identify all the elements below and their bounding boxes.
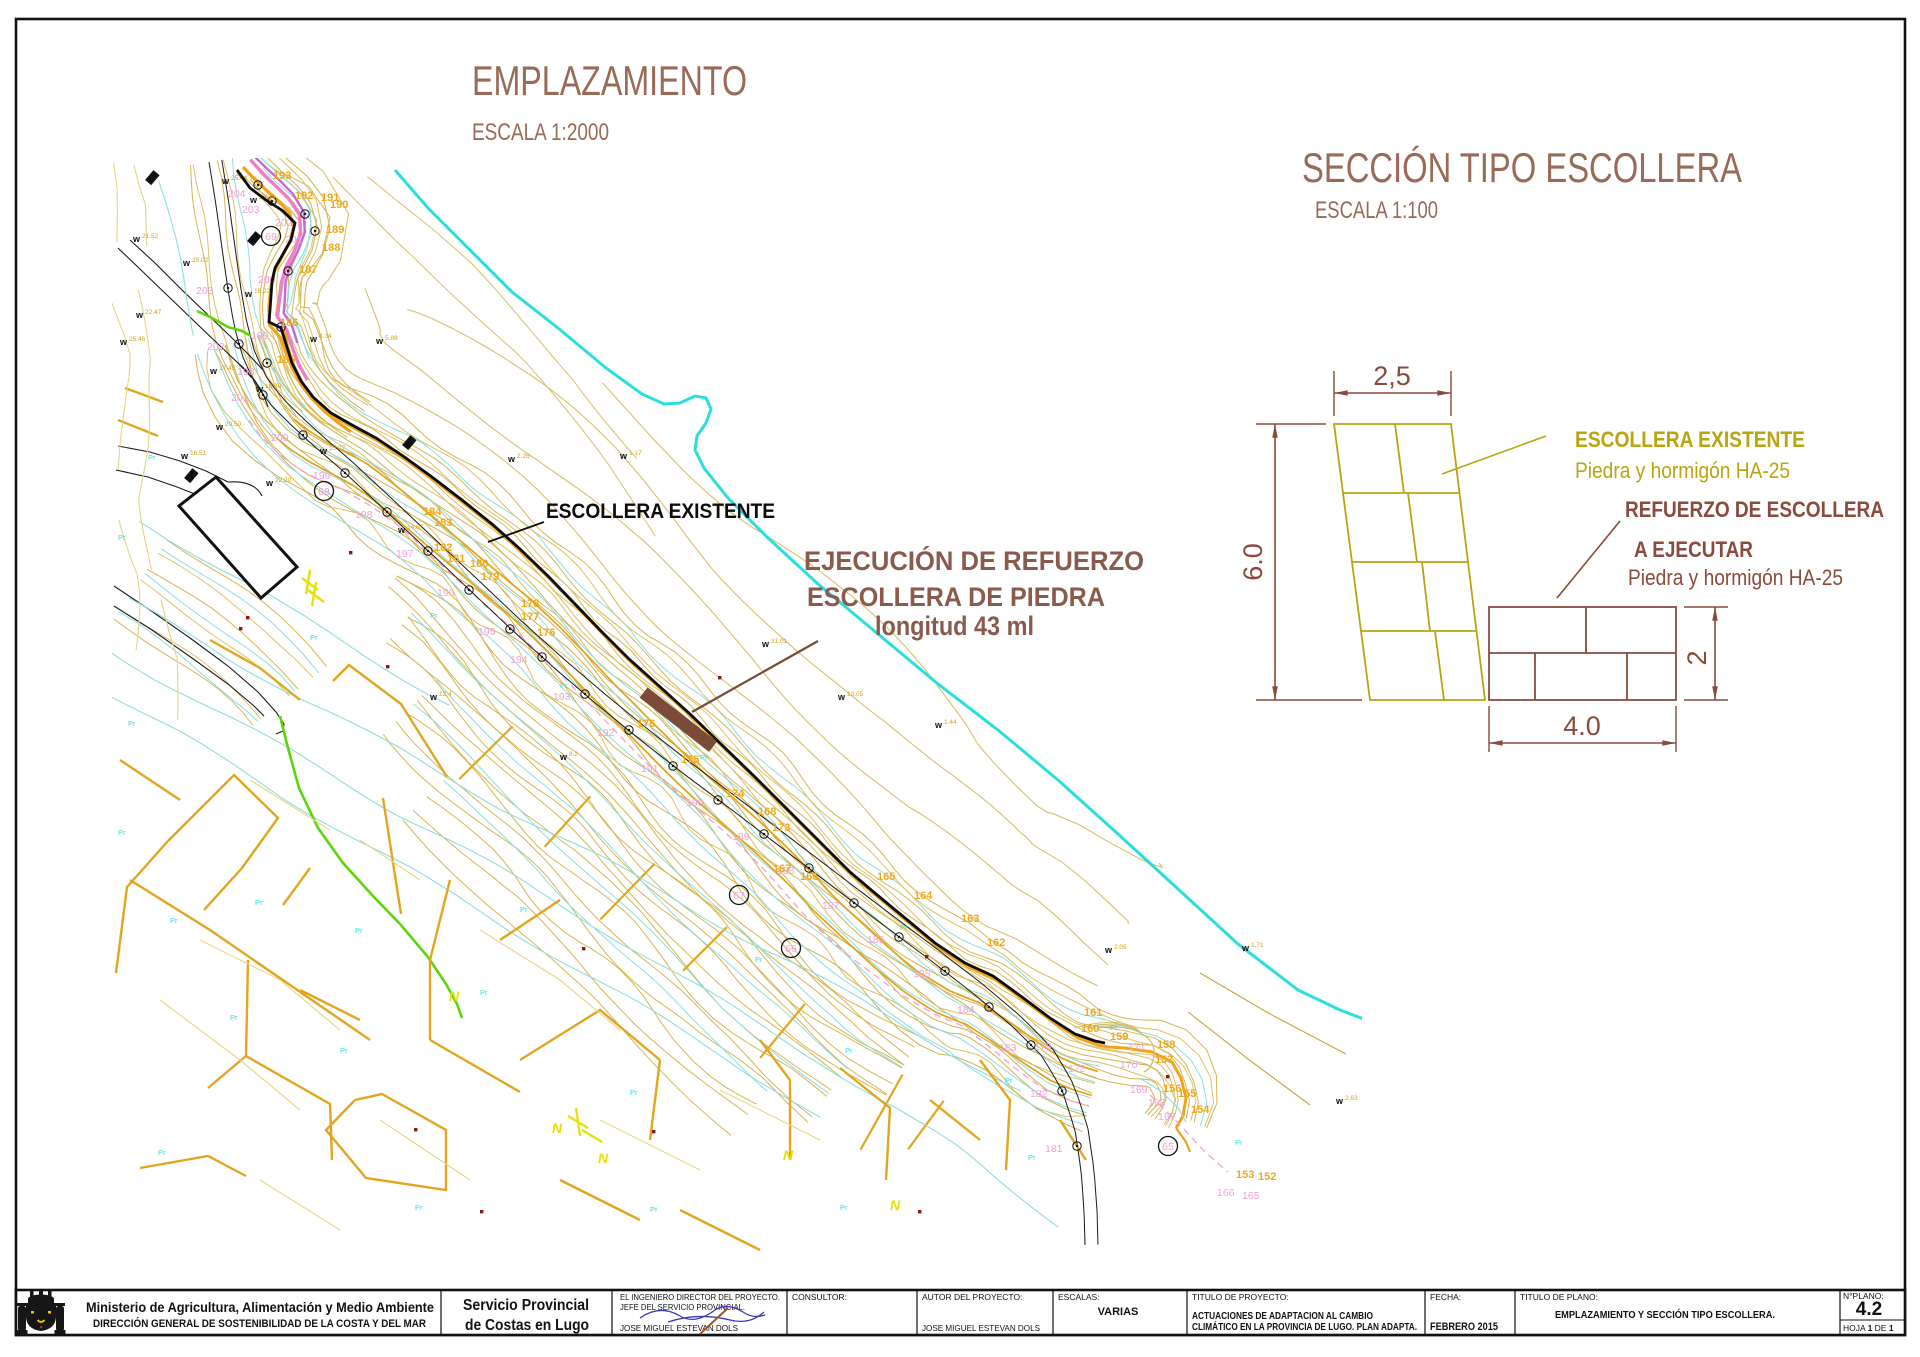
svg-text:68: 68 — [318, 486, 330, 498]
svg-text:67: 67 — [733, 890, 745, 902]
svg-text:196: 196 — [437, 587, 455, 599]
svg-text:w: w — [619, 451, 628, 461]
svg-text:4.2: 4.2 — [1856, 1299, 1882, 1320]
svg-text:Pr: Pr — [118, 533, 126, 542]
svg-text:161: 161 — [1084, 1007, 1102, 1019]
svg-text:173: 173 — [1034, 1041, 1052, 1053]
svg-text:w: w — [221, 176, 230, 186]
svg-text:Pr: Pr — [840, 1203, 848, 1212]
svg-text:Pr: Pr — [158, 1148, 166, 1157]
svg-text:N: N — [449, 988, 460, 1004]
svg-text:2.05: 2.05 — [1114, 944, 1127, 951]
svg-text:195: 195 — [478, 626, 496, 638]
svg-text:2.26: 2.26 — [517, 453, 530, 460]
svg-text:183: 183 — [999, 1042, 1017, 1054]
svg-text:164: 164 — [914, 890, 933, 902]
svg-text:JOSE MIGUEL ESTEVAN DOLS: JOSE MIGUEL ESTEVAN DOLS — [922, 1323, 1040, 1333]
svg-text:177: 177 — [521, 611, 539, 623]
svg-text:6.0: 6.0 — [1238, 543, 1268, 581]
svg-text:JOSE MIGUEL ESTEVAN DOLS: JOSE MIGUEL ESTEVAN DOLS — [620, 1323, 738, 1333]
svg-text:157: 157 — [1155, 1054, 1173, 1066]
svg-text:172: 172 — [1068, 1063, 1086, 1075]
svg-text:188: 188 — [322, 242, 340, 254]
svg-text:165: 165 — [1242, 1190, 1260, 1202]
svg-text:CONSULTOR:: CONSULTOR: — [792, 1292, 847, 1302]
svg-text:190: 190 — [330, 199, 348, 211]
svg-text:31.01: 31.01 — [771, 638, 788, 645]
svg-text:8.2: 8.2 — [569, 751, 578, 758]
svg-text:w: w — [119, 337, 128, 347]
svg-text:w: w — [761, 639, 770, 649]
svg-text:N: N — [890, 1197, 901, 1213]
svg-text:w: w — [249, 195, 258, 205]
svg-text:192: 192 — [295, 190, 313, 202]
svg-text:153: 153 — [1236, 1169, 1254, 1181]
svg-text:184: 184 — [957, 1004, 975, 1016]
svg-text:159: 159 — [1110, 1031, 1128, 1043]
svg-text:Servicio Provincial: Servicio Provincial — [463, 1297, 589, 1314]
svg-text:ESCOLLERA DE PIEDRA: ESCOLLERA DE PIEDRA — [807, 582, 1105, 612]
svg-text:de Costas en Lugo: de Costas en Lugo — [465, 1317, 589, 1334]
svg-text:Piedra y hormigón HA-25: Piedra y hormigón HA-25 — [1628, 565, 1843, 590]
svg-text:163: 163 — [961, 913, 979, 925]
svg-text:Pr: Pr — [650, 1205, 658, 1214]
svg-text:Pr: Pr — [148, 453, 156, 462]
svg-text:2,5: 2,5 — [1373, 361, 1411, 391]
svg-text:w: w — [375, 336, 384, 346]
svg-text:ESCALA 1:100: ESCALA 1:100 — [1315, 197, 1438, 224]
svg-text:174: 174 — [726, 788, 745, 800]
svg-text:w: w — [265, 478, 274, 488]
svg-text:20.50: 20.50 — [225, 421, 242, 428]
svg-text:EMPLAZAMIENTO: EMPLAZAMIENTO — [472, 57, 747, 104]
svg-text:166: 166 — [1217, 1187, 1235, 1199]
svg-text:168: 168 — [1148, 1097, 1166, 1109]
svg-text:152: 152 — [1258, 1171, 1276, 1183]
svg-text:Pr: Pr — [700, 753, 708, 762]
svg-text:4.0: 4.0 — [1563, 711, 1601, 741]
svg-text:w: w — [182, 258, 191, 268]
svg-text:16.30: 16.30 — [265, 383, 282, 390]
svg-text:w: w — [1335, 1096, 1344, 1106]
svg-text:202: 202 — [207, 341, 225, 353]
svg-text:194: 194 — [510, 654, 528, 666]
svg-text:166: 166 — [800, 871, 818, 883]
svg-text:14.67: 14.67 — [407, 524, 424, 531]
svg-text:171: 171 — [1128, 1041, 1146, 1053]
svg-text:203: 203 — [196, 285, 214, 297]
svg-text:186: 186 — [867, 934, 885, 946]
svg-text:193: 193 — [273, 170, 291, 182]
svg-text:Pr: Pr — [900, 923, 908, 932]
svg-text:66: 66 — [785, 943, 797, 955]
svg-text:ESCOLLERA EXISTENTE: ESCOLLERA EXISTENTE — [1575, 427, 1805, 452]
svg-text:longitud 43 ml: longitud 43 ml — [875, 611, 1034, 641]
svg-text:Pr: Pr — [1028, 1153, 1036, 1162]
svg-text:Pr: Pr — [310, 633, 318, 642]
svg-text:TITULO DE PLANO:: TITULO DE PLANO: — [1520, 1292, 1598, 1302]
svg-text:181: 181 — [447, 553, 465, 565]
svg-text:180: 180 — [470, 558, 488, 570]
svg-text:12.4: 12.4 — [439, 691, 452, 698]
svg-text:N: N — [552, 1120, 563, 1136]
svg-text:Pr: Pr — [230, 1013, 238, 1022]
svg-text:w: w — [244, 289, 253, 299]
svg-text:AUTOR DEL PROYECTO:: AUTOR DEL PROYECTO: — [922, 1292, 1022, 1302]
svg-text:187: 187 — [299, 264, 317, 276]
svg-text:167: 167 — [1158, 1111, 1176, 1123]
svg-text:22.20: 22.20 — [275, 477, 292, 484]
svg-text:w: w — [255, 384, 264, 394]
svg-text:198: 198 — [237, 366, 255, 378]
svg-text:Pr: Pr — [755, 955, 763, 964]
svg-text:w: w — [429, 692, 438, 702]
svg-text:ESCALAS:: ESCALAS: — [1058, 1292, 1100, 1302]
svg-text:EJECUCIÓN DE REFUERZO: EJECUCIÓN DE REFUERZO — [804, 545, 1144, 576]
svg-text:A EJECUTAR: A EJECUTAR — [1634, 537, 1753, 562]
svg-text:204: 204 — [228, 188, 246, 200]
svg-text:Pr: Pr — [630, 1088, 638, 1097]
svg-text:w: w — [1104, 945, 1113, 955]
svg-text:181: 181 — [1045, 1143, 1063, 1155]
svg-text:w: w — [559, 752, 568, 762]
svg-text:65: 65 — [1162, 1141, 1174, 1153]
svg-text:182: 182 — [1030, 1088, 1048, 1100]
svg-text:16.51: 16.51 — [190, 450, 207, 457]
svg-text:185: 185 — [913, 968, 931, 980]
svg-text:Pr: Pr — [560, 681, 568, 690]
svg-text:w: w — [934, 720, 943, 730]
svg-text:w: w — [309, 334, 318, 344]
svg-text:w: w — [319, 446, 328, 456]
svg-text:5.88: 5.88 — [385, 335, 398, 342]
svg-text:Pr: Pr — [170, 916, 178, 925]
svg-text:18.22: 18.22 — [254, 288, 271, 295]
svg-text:4.34: 4.34 — [319, 333, 332, 340]
svg-text:203: 203 — [242, 204, 260, 216]
svg-text:2: 2 — [1682, 650, 1712, 665]
svg-text:69: 69 — [265, 231, 277, 243]
svg-text:Ministerio de Agricultura, Ali: Ministerio de Agricultura, Alimentación … — [86, 1300, 434, 1315]
svg-text:DIRECCIÓN GENERAL DE SOSTENIBI: DIRECCIÓN GENERAL DE SOSTENIBILIDAD DE L… — [93, 1317, 426, 1330]
svg-text:186: 186 — [280, 317, 298, 329]
svg-text:Pr: Pr — [520, 905, 528, 914]
svg-text:198: 198 — [355, 509, 373, 521]
svg-text:ESCOLLERA EXISTENTE: ESCOLLERA EXISTENTE — [546, 500, 775, 523]
svg-text:2.63: 2.63 — [1345, 1095, 1358, 1102]
svg-text:w: w — [837, 692, 846, 702]
svg-text:Pr: Pr — [255, 898, 263, 907]
svg-text:N: N — [783, 1147, 794, 1163]
svg-text:176: 176 — [637, 718, 655, 730]
svg-text:w: w — [180, 451, 189, 461]
svg-text:165: 165 — [877, 871, 895, 883]
svg-text:189: 189 — [326, 224, 344, 236]
svg-text:1.71: 1.71 — [1251, 942, 1264, 949]
svg-text:13.05: 13.05 — [847, 691, 864, 698]
svg-text:TITULO DE PROYECTO:: TITULO DE PROYECTO: — [1192, 1292, 1289, 1302]
svg-text:176: 176 — [537, 627, 555, 639]
svg-text:VARIAS: VARIAS — [1098, 1306, 1139, 1318]
svg-text:189: 189 — [732, 831, 750, 843]
svg-text:158: 158 — [1157, 1039, 1175, 1051]
svg-text:170: 170 — [1120, 1059, 1138, 1071]
svg-text:REFUERZO DE ESCOLLERA: REFUERZO DE ESCOLLERA — [1625, 497, 1884, 522]
svg-text:FECHA:: FECHA: — [1430, 1292, 1461, 1302]
svg-text:w: w — [507, 454, 516, 464]
svg-text:22.47: 22.47 — [145, 309, 162, 316]
svg-text:FEBRERO 2015: FEBRERO 2015 — [1430, 1321, 1498, 1333]
svg-text:175: 175 — [681, 754, 699, 766]
svg-text:w: w — [132, 234, 141, 244]
svg-text:EMPLAZAMIENTO Y SECCIÓN TIPO E: EMPLAZAMIENTO Y SECCIÓN TIPO ESCOLLERA. — [1555, 1308, 1775, 1321]
svg-text:201: 201 — [231, 392, 249, 404]
svg-text:160: 160 — [1081, 1023, 1099, 1035]
svg-text:154: 154 — [1191, 1104, 1210, 1116]
svg-text:1.17: 1.17 — [629, 450, 642, 457]
svg-text:Pr: Pr — [430, 611, 438, 620]
svg-text:25.46: 25.46 — [129, 336, 146, 343]
svg-text:17.45: 17.45 — [219, 365, 236, 372]
svg-text:169: 169 — [1130, 1084, 1148, 1096]
svg-text:Piedra y hormigón HA-25: Piedra y hormigón HA-25 — [1575, 458, 1790, 483]
svg-text:Pr: Pr — [118, 828, 126, 837]
svg-text:CLIMÁTICO EN LA PROVINCIA DE L: CLIMÁTICO EN LA PROVINCIA DE LUGO. PLAN … — [1192, 1320, 1417, 1333]
svg-text:183: 183 — [434, 517, 452, 529]
svg-text:191: 191 — [641, 763, 659, 775]
svg-text:Pr: Pr — [355, 926, 363, 935]
svg-text:Pr: Pr — [1005, 1076, 1013, 1085]
svg-text:EL INGENIERO DIRECTOR DEL PROY: EL INGENIERO DIRECTOR DEL PROYECTO. — [620, 1292, 780, 1302]
svg-text:190: 190 — [686, 797, 704, 809]
svg-text:168: 168 — [758, 806, 776, 818]
svg-text:200: 200 — [271, 432, 289, 444]
svg-text:179: 179 — [481, 571, 499, 583]
svg-text:15.27: 15.27 — [329, 445, 346, 452]
svg-text:1.44: 1.44 — [944, 719, 957, 726]
svg-text:199: 199 — [313, 470, 331, 482]
svg-text:w: w — [397, 525, 406, 535]
svg-text:Pr: Pr — [1110, 1023, 1118, 1032]
svg-text:w: w — [1241, 943, 1250, 953]
svg-text:Pr: Pr — [1235, 1138, 1243, 1147]
svg-text:192: 192 — [597, 727, 615, 739]
svg-text:w: w — [215, 422, 224, 432]
svg-text:162: 162 — [987, 937, 1005, 949]
svg-text:w: w — [209, 366, 218, 376]
svg-text:Pr: Pr — [128, 719, 136, 728]
svg-text:HOJA 1 DE 1: HOJA 1 DE 1 — [1843, 1323, 1894, 1333]
svg-text:197: 197 — [396, 548, 414, 560]
svg-text:Pr: Pr — [480, 988, 488, 997]
svg-text:21.52: 21.52 — [142, 233, 159, 240]
svg-text:ESCALA 1:2000: ESCALA 1:2000 — [472, 119, 609, 146]
svg-text:167: 167 — [773, 863, 791, 875]
svg-text:193: 193 — [553, 691, 571, 703]
svg-text:ACTUACIONES DE ADAPTACION AL C: ACTUACIONES DE ADAPTACION AL CAMBIO — [1192, 1311, 1373, 1322]
svg-text:Pr: Pr — [340, 1046, 348, 1055]
svg-text:N: N — [598, 1150, 609, 1166]
svg-text:199: 199 — [251, 330, 269, 342]
svg-text:w: w — [135, 310, 144, 320]
svg-text:Pr: Pr — [845, 1046, 853, 1055]
svg-text:SECCIÓN TIPO ESCOLLERA: SECCIÓN TIPO ESCOLLERA — [1302, 144, 1742, 191]
svg-text:155: 155 — [1178, 1088, 1196, 1100]
svg-text:25.02: 25.02 — [192, 257, 209, 264]
svg-text:187: 187 — [822, 900, 840, 912]
svg-text:173: 173 — [772, 822, 790, 834]
svg-text:Pr: Pr — [415, 1203, 423, 1212]
svg-text:178: 178 — [521, 598, 539, 610]
